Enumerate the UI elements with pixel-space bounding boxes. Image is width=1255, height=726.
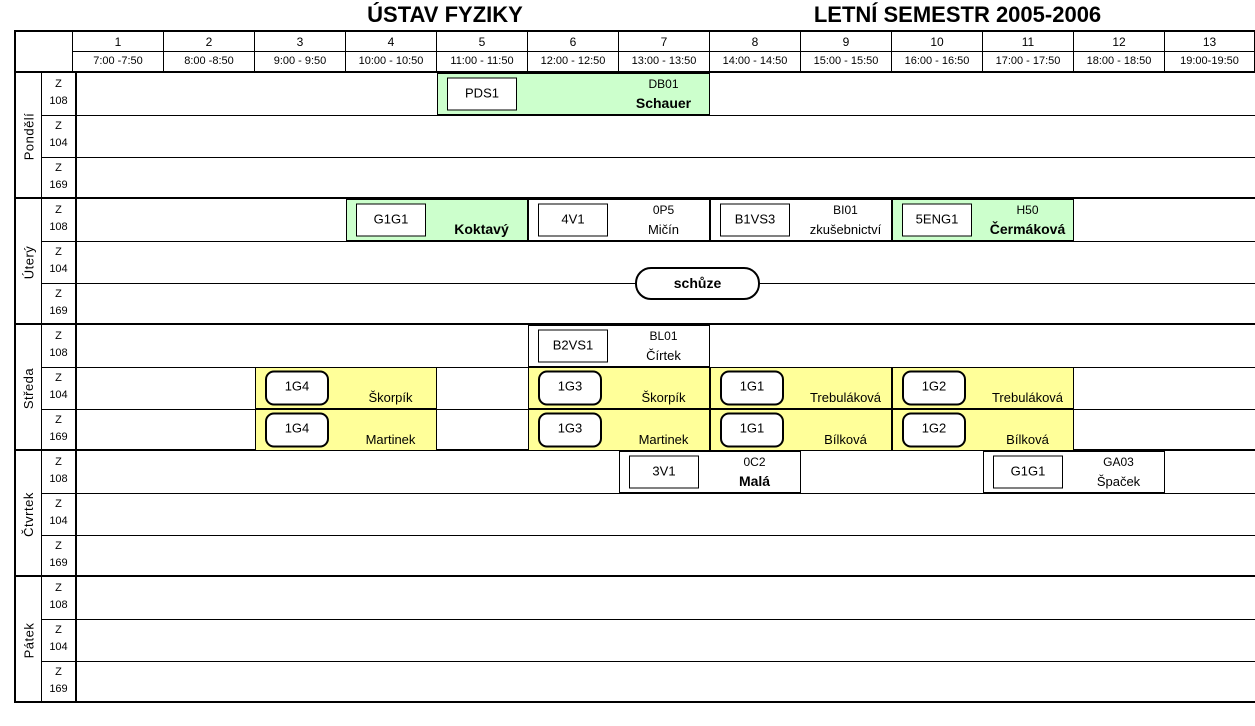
slot-time-cell: 14:00 - 14:50 (710, 52, 801, 73)
event-text: Koktavý (436, 200, 527, 240)
course-code-box[interactable]: 1G3 (538, 371, 602, 406)
event-text: H50Čermáková (982, 200, 1073, 240)
slot-time-cell: 11:00 - 11:50 (437, 52, 528, 73)
event-block: G1G1GA03Špaček (983, 451, 1165, 493)
lecturer-name: Malá (709, 473, 800, 489)
slot-time-cell: 16:00 - 16:50 (892, 52, 983, 73)
lecturer-name: zkušebnictví (800, 222, 891, 237)
event-block: B2VS1BL01Čírtek (528, 325, 710, 367)
room-label-line1: Z (42, 580, 75, 597)
lecturer-name: Schauer (618, 95, 709, 111)
room-label-line2: 108 (42, 93, 75, 110)
event-text: 0P5Mičín (618, 200, 709, 240)
slot-number-cell: 10 (892, 30, 983, 52)
room-label: Z104 (42, 115, 75, 157)
slot-number-cell: 3 (255, 30, 346, 52)
room-label-line1: Z (42, 76, 75, 93)
event-block: 1G1Trebuláková (710, 367, 892, 409)
event-text: DB01Schauer (618, 74, 709, 114)
event-block: 1G2Bílková (892, 409, 1074, 451)
course-code-box[interactable]: 1G2 (902, 371, 966, 406)
event-text: Škorpík (345, 368, 436, 408)
event-block: 1G2Trebuláková (892, 367, 1074, 409)
room-label: Z108 (42, 73, 75, 115)
room-label: Z169 (42, 661, 75, 703)
room-label-line2: 108 (42, 597, 75, 614)
lecturer-name: Martinek (345, 432, 436, 447)
room-divider-line (42, 241, 1255, 242)
course-code: 0C2 (709, 455, 800, 469)
slot-number-cell: 11 (983, 30, 1074, 52)
room-label-line1: Z (42, 664, 75, 681)
slot-number-cell: 12 (1074, 30, 1165, 52)
event-text: BL01Čírtek (618, 326, 709, 366)
room-label-line1: Z (42, 118, 75, 135)
day-label-text: Pátek (21, 622, 36, 658)
day-label-text: Středa (21, 367, 36, 408)
lecturer-name: Čírtek (618, 348, 709, 363)
event-block: B1VS3BI01zkušebnictví (710, 199, 892, 241)
slot-number-cell: 7 (619, 30, 710, 52)
event-block: PDS1DB01Schauer (437, 73, 710, 115)
room-label-line1: Z (42, 538, 75, 555)
room-label-line1: Z (42, 202, 75, 219)
lecturer-name: Trebuláková (800, 390, 891, 405)
event-block: 1G1Bílková (710, 409, 892, 451)
room-divider-line (42, 535, 1255, 536)
course-code-box[interactable]: 4V1 (538, 204, 608, 237)
day-row-group: PátekZ108Z104Z169 (14, 577, 1255, 703)
room-column-border (75, 199, 77, 325)
day-label: Pátek (16, 577, 42, 703)
page-title-institute: ÚSTAV FYZIKY (230, 1, 660, 29)
room-label-line2: 169 (42, 555, 75, 572)
room-column-border (75, 325, 77, 451)
event-text: Martinek (345, 410, 436, 450)
event-text: BI01zkušebnictví (800, 200, 891, 240)
room-label: Z169 (42, 283, 75, 325)
room-divider-line (42, 619, 1255, 620)
lecturer-name: Koktavý (436, 221, 527, 237)
day-label: Úterý (16, 199, 42, 325)
course-code-box[interactable]: 3V1 (629, 456, 699, 489)
room-label-line2: 169 (42, 303, 75, 320)
course-code: BL01 (618, 329, 709, 343)
room-label-line2: 104 (42, 135, 75, 152)
room-label-line2: 169 (42, 177, 75, 194)
timetable-sheet: ÚSTAV FYZIKY LETNÍ SEMESTR 2005-2006 17:… (0, 0, 1255, 726)
room-label: Z169 (42, 157, 75, 199)
lecturer-name: Škorpík (345, 390, 436, 405)
lecturer-name: Bílková (800, 432, 891, 447)
room-divider-line (42, 493, 1255, 494)
room-label-line2: 104 (42, 387, 75, 404)
room-column-border (75, 73, 77, 199)
room-column-border (75, 451, 77, 577)
event-block: 3V10C2Malá (619, 451, 801, 493)
slot-number-cell: 2 (164, 30, 255, 52)
day-label: Středa (16, 325, 42, 451)
room-label-line1: Z (42, 328, 75, 345)
day-label: Pondělí (16, 73, 42, 199)
course-code-box[interactable]: B2VS1 (538, 330, 608, 363)
course-code-box[interactable]: 1G4 (265, 371, 329, 406)
event-block: G1G1Koktavý (346, 199, 528, 241)
course-code-box[interactable]: G1G1 (993, 456, 1063, 489)
event-text: GA03Špaček (1073, 452, 1164, 492)
room-label-line1: Z (42, 622, 75, 639)
schuze-badge[interactable]: schůze (635, 267, 760, 300)
room-label-line1: Z (42, 412, 75, 429)
slot-time-cell: 15:00 - 15:50 (801, 52, 892, 73)
room-label: Z104 (42, 619, 75, 661)
slot-number-cell: 8 (710, 30, 801, 52)
course-code-box[interactable]: 1G1 (720, 413, 784, 448)
course-code-box[interactable]: 1G2 (902, 413, 966, 448)
room-label-line2: 108 (42, 345, 75, 362)
room-label: Z169 (42, 409, 75, 451)
course-code-box[interactable]: PDS1 (447, 78, 517, 111)
event-text: Trebuláková (982, 368, 1073, 408)
slot-time-cell: 18:00 - 18:50 (1074, 52, 1165, 73)
room-label-line2: 108 (42, 219, 75, 236)
room-label: Z108 (42, 577, 75, 619)
course-code-box[interactable]: 1G4 (265, 413, 329, 448)
lecturer-name: Špaček (1073, 474, 1164, 489)
slot-time-cell: 13:00 - 13:50 (619, 52, 710, 73)
course-code: 0P5 (618, 203, 709, 217)
course-code-box[interactable]: G1G1 (356, 204, 426, 237)
day-label: Čtvrtek (16, 451, 42, 577)
room-column-border (75, 577, 77, 703)
lecturer-name: Bílková (982, 432, 1073, 447)
slot-time-cell: 12:00 - 12:50 (528, 52, 619, 73)
event-block: 5ENG1H50Čermáková (892, 199, 1074, 241)
lecturer-name: Trebuláková (982, 390, 1073, 405)
event-text: Škorpík (618, 368, 709, 408)
lecturer-name: Škorpík (618, 390, 709, 405)
course-code-box[interactable]: 1G1 (720, 371, 784, 406)
room-label-line1: Z (42, 244, 75, 261)
lecturer-name: Martinek (618, 432, 709, 447)
room-label-line1: Z (42, 160, 75, 177)
day-label-text: Úterý (21, 245, 36, 279)
course-code-box[interactable]: B1VS3 (720, 204, 790, 237)
slot-time-cell: 10:00 - 10:50 (346, 52, 437, 73)
room-divider-line (42, 115, 1255, 116)
slot-number-cell: 6 (528, 30, 619, 52)
event-block: 1G3Martinek (528, 409, 710, 451)
event-block: 1G4Škorpík (255, 367, 437, 409)
room-label-line1: Z (42, 370, 75, 387)
slot-time-cell: 9:00 - 9:50 (255, 52, 346, 73)
event-text: Trebuláková (800, 368, 891, 408)
room-label-line2: 169 (42, 429, 75, 446)
room-label-line1: Z (42, 286, 75, 303)
room-label-line2: 104 (42, 261, 75, 278)
event-text: Martinek (618, 410, 709, 450)
event-text: Bílková (982, 410, 1073, 450)
lecturer-name: Čermáková (982, 221, 1073, 237)
slot-number-cell: 5 (437, 30, 528, 52)
room-divider-line (42, 157, 1255, 158)
room-label-line2: 108 (42, 471, 75, 488)
event-block: 1G3Škorpík (528, 367, 710, 409)
day-label-text: Čtvrtek (21, 492, 36, 537)
room-label: Z108 (42, 451, 75, 493)
room-label-line2: 104 (42, 513, 75, 530)
room-label: Z108 (42, 199, 75, 241)
page-title-semester: LETNÍ SEMESTR 2005-2006 (740, 1, 1175, 29)
room-label: Z108 (42, 325, 75, 367)
room-label-line2: 104 (42, 639, 75, 656)
room-label-line1: Z (42, 496, 75, 513)
course-code: GA03 (1073, 455, 1164, 469)
slot-number-cell: 13 (1165, 30, 1255, 52)
slot-time-cell: 17:00 - 17:50 (983, 52, 1074, 73)
room-divider-line (42, 661, 1255, 662)
event-text: Bílková (800, 410, 891, 450)
slot-time-cell: 7:00 -7:50 (73, 52, 164, 73)
event-block: 1G4Martinek (255, 409, 437, 451)
slot-number-cell: 4 (346, 30, 437, 52)
slot-number-cell: 1 (73, 30, 164, 52)
slot-time-cell: 8:00 -8:50 (164, 52, 255, 73)
course-code-box[interactable]: 5ENG1 (902, 204, 972, 237)
event-block: 4V10P5Mičín (528, 199, 710, 241)
course-code-box[interactable]: 1G3 (538, 413, 602, 448)
room-label-line2: 169 (42, 681, 75, 698)
day-label-text: Pondělí (21, 112, 36, 160)
room-label: Z104 (42, 493, 75, 535)
lecturer-name: Mičín (618, 222, 709, 237)
course-code: DB01 (618, 77, 709, 91)
room-label: Z104 (42, 241, 75, 283)
course-code: H50 (982, 203, 1073, 217)
event-text: 0C2Malá (709, 452, 800, 492)
room-label: Z104 (42, 367, 75, 409)
course-code: BI01 (800, 203, 891, 217)
room-label: Z169 (42, 535, 75, 577)
slot-number-cell: 9 (801, 30, 892, 52)
slot-time-cell: 19:00-19:50 (1165, 52, 1255, 73)
header-corner-cell (14, 30, 73, 73)
room-label-line1: Z (42, 454, 75, 471)
